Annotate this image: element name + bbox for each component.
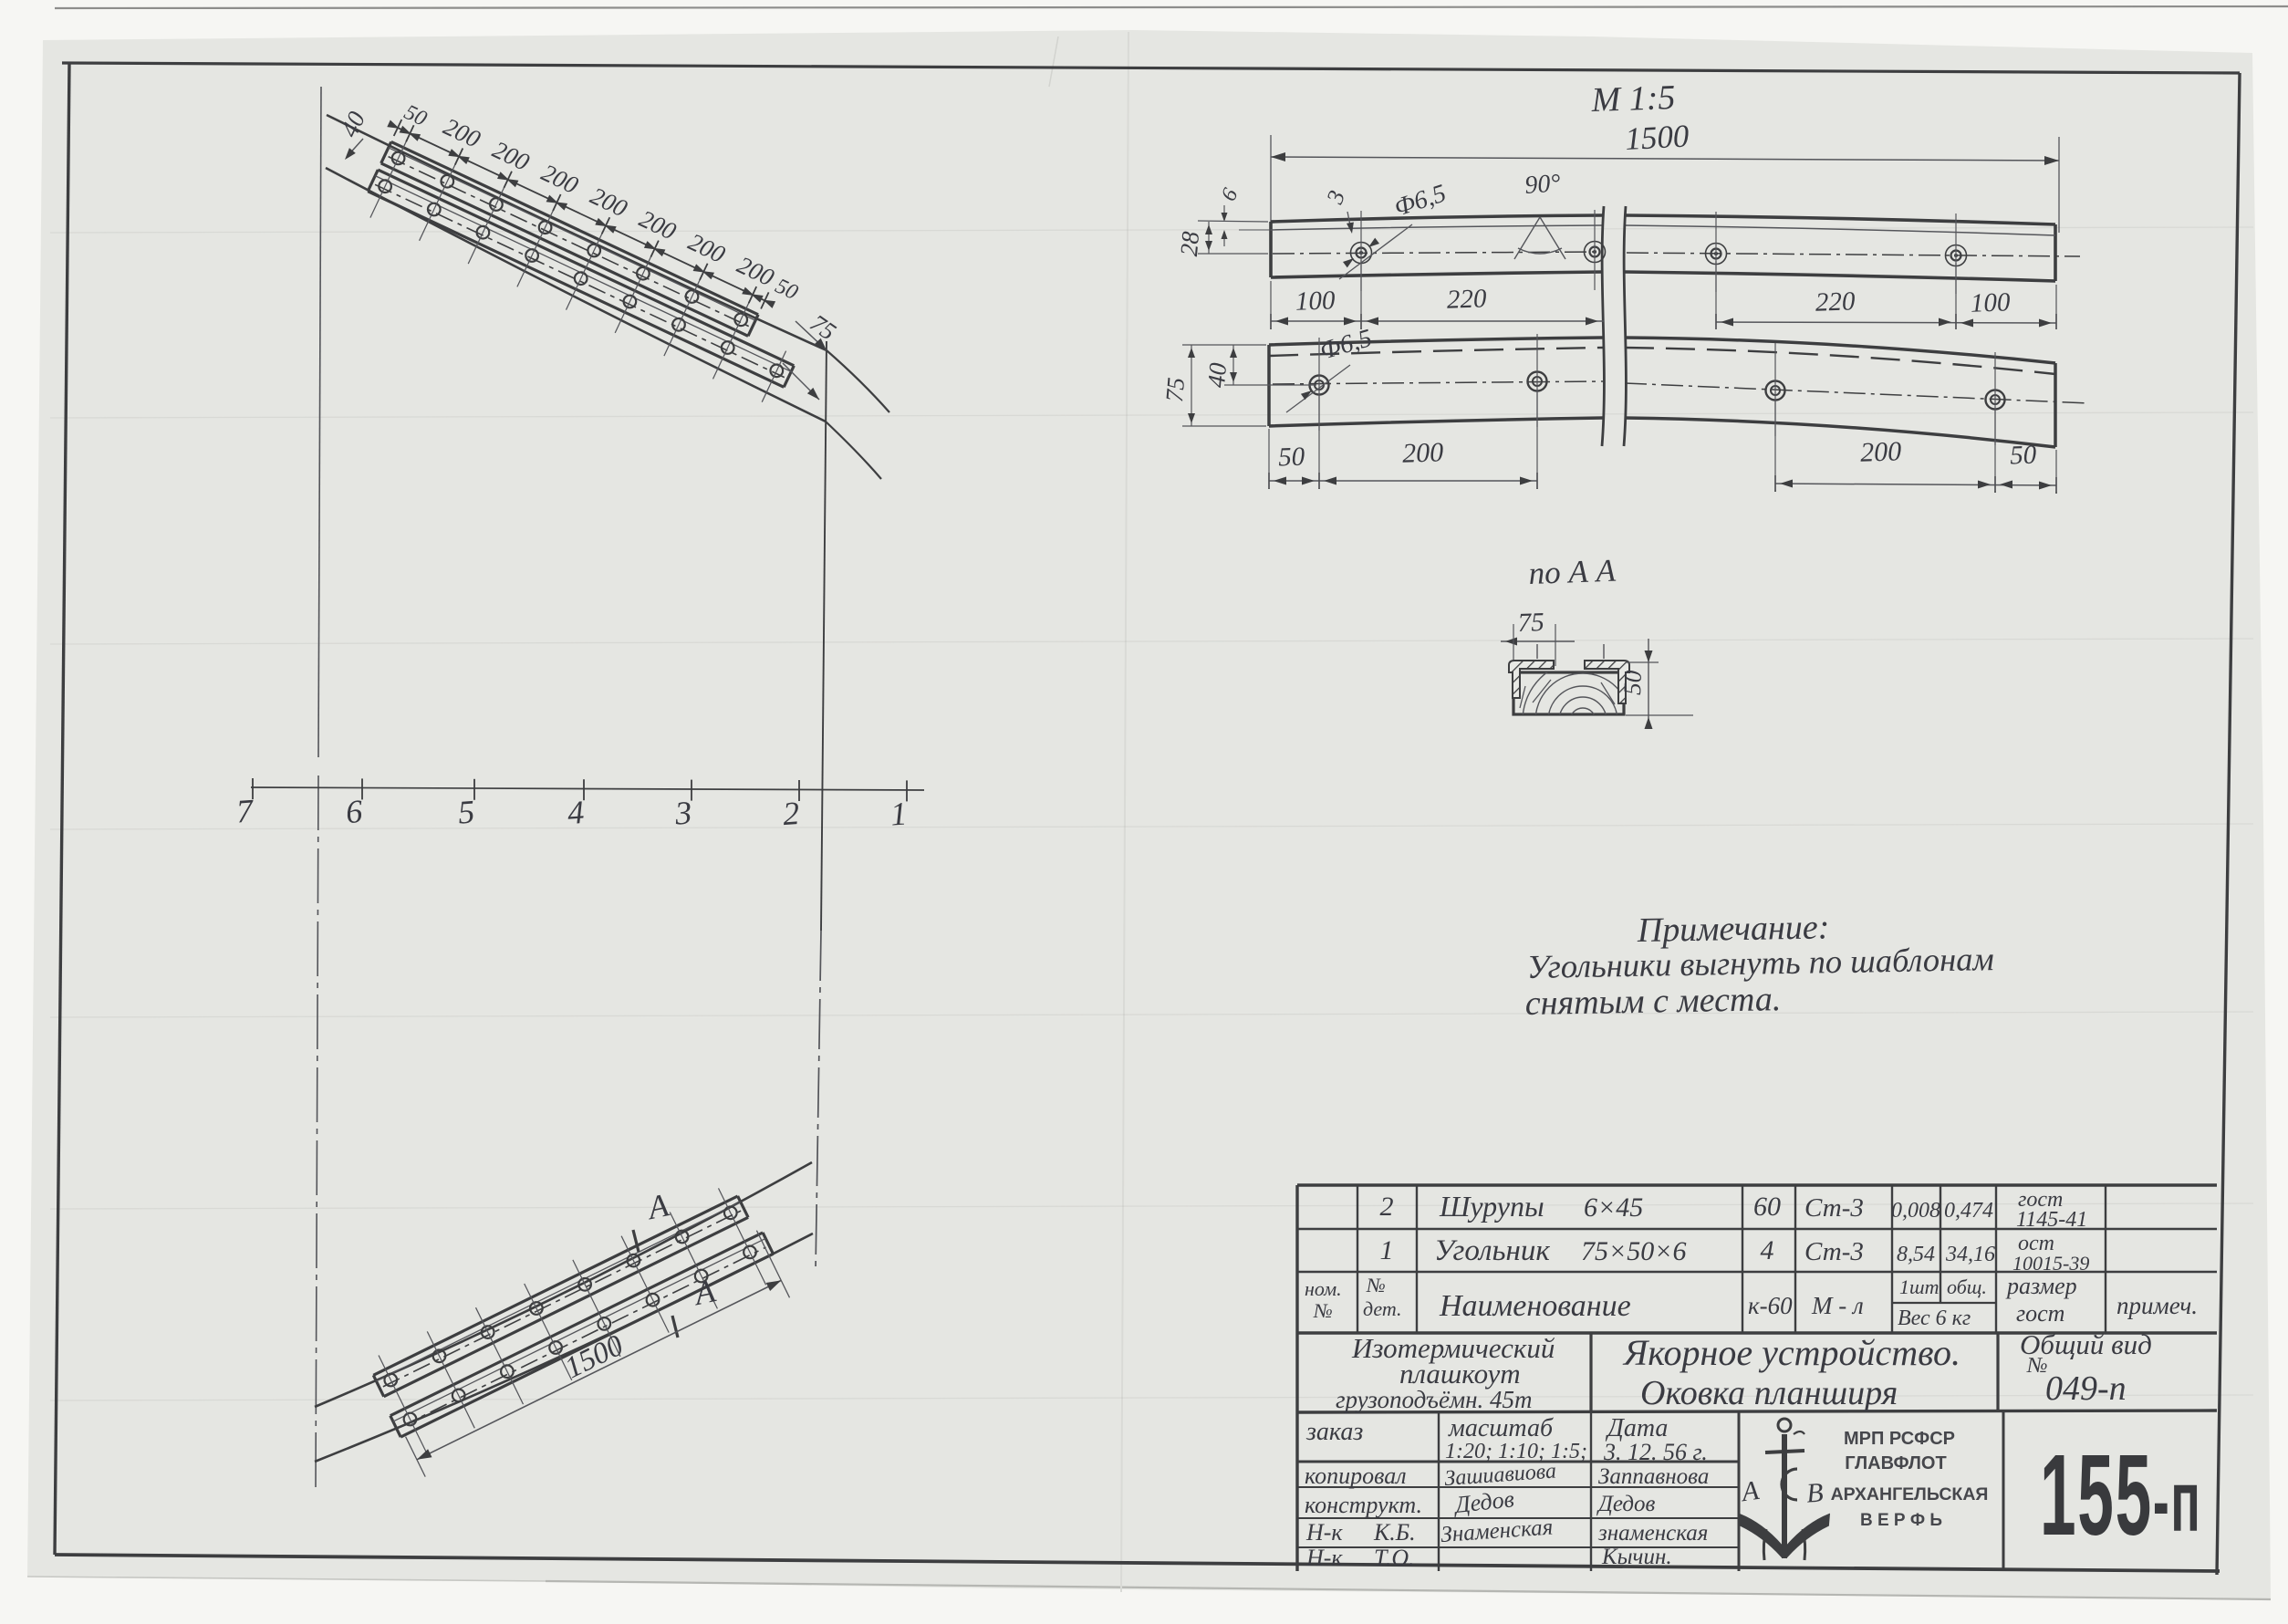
svg-text:50: 50 <box>1278 442 1306 472</box>
svg-text:Угольник: Угольник <box>1434 1234 1550 1267</box>
svg-text:Н-к: Н-к <box>1305 1519 1343 1546</box>
svg-text:Ст-3: Ст-3 <box>1804 1237 1864 1266</box>
svg-text:ГЛАВФЛОТ: ГЛАВФЛОТ <box>1845 1453 1946 1473</box>
svg-text:75×50×6: 75×50×6 <box>1581 1236 1687 1266</box>
svg-text:В: В <box>1805 1477 1825 1508</box>
svg-text:копировал: копировал <box>1305 1463 1407 1489</box>
svg-text:знаменская: знаменская <box>1597 1521 1708 1546</box>
svg-text:грузоподъёмн. 45т: грузоподъёмн. 45т <box>1336 1386 1533 1413</box>
svg-text:220: 220 <box>1815 286 1856 318</box>
svg-text:34,16: 34,16 <box>1945 1243 1995 1266</box>
svg-text:заказ: заказ <box>1305 1418 1363 1446</box>
svg-text:0,474: 0,474 <box>1944 1199 1993 1223</box>
svg-text:размер: размер <box>2005 1273 2077 1299</box>
svg-text:6: 6 <box>345 793 364 830</box>
svg-text:220: 220 <box>1446 284 1487 315</box>
svg-text:049-п: 049-п <box>2045 1369 2127 1408</box>
svg-text:М - л: М - л <box>1811 1292 1864 1319</box>
svg-text:200: 200 <box>1860 436 1902 468</box>
svg-text:общ.: общ. <box>1947 1275 1987 1298</box>
svg-text:4: 4 <box>567 794 586 831</box>
svg-text:1: 1 <box>889 795 909 832</box>
svg-text:100: 100 <box>1970 287 2011 318</box>
svg-text:Н-к: Н-к <box>1305 1545 1343 1571</box>
svg-text:АРХАНГЕЛЬСКАЯ: АРХАНГЕЛЬСКАЯ <box>1831 1484 1989 1504</box>
svg-text:75: 75 <box>1517 608 1544 638</box>
svg-text:МРП РСФСР: МРП РСФСР <box>1844 1429 1955 1449</box>
svg-text:1: 1 <box>1380 1235 1394 1265</box>
svg-text:3. 12. 56 г.: 3. 12. 56 г. <box>1603 1439 1708 1465</box>
svg-text:примеч.: примеч. <box>2116 1292 2198 1319</box>
svg-text:снятым с места.: снятым с места. <box>1524 980 1781 1023</box>
svg-text:75: 75 <box>1160 376 1190 403</box>
svg-text:50: 50 <box>1618 670 1647 696</box>
svg-text:дет.: дет. <box>1363 1297 1402 1320</box>
svg-text:1шт: 1шт <box>1899 1275 1940 1298</box>
svg-text:8,54: 8,54 <box>1897 1243 1935 1266</box>
svg-text:4: 4 <box>1761 1235 1774 1265</box>
svg-text:1:20; 1:10; 1:5;: 1:20; 1:10; 1:5; <box>1445 1440 1587 1463</box>
svg-text:0,008: 0,008 <box>1891 1199 1940 1223</box>
svg-text:5: 5 <box>457 793 476 830</box>
svg-text:В Е Р Ф Ь: В Е Р Ф Ь <box>1860 1511 1942 1530</box>
svg-text:Вес 6 кг: Вес 6 кг <box>1898 1306 1971 1330</box>
svg-text:1145-41: 1145-41 <box>2016 1208 2087 1232</box>
svg-text:конструкт.: конструкт. <box>1305 1492 1422 1518</box>
svg-text:2: 2 <box>782 795 801 832</box>
svg-text:2: 2 <box>1380 1192 1394 1222</box>
svg-text:50: 50 <box>2010 440 2038 470</box>
svg-text:Т.О.: Т.О. <box>1374 1545 1415 1571</box>
svg-text:10015-39: 10015-39 <box>2012 1252 2089 1275</box>
svg-text:плашкоут: плашкоут <box>1399 1358 1521 1390</box>
svg-text:Кычин.: Кычин. <box>1601 1545 1672 1569</box>
svg-text:3: 3 <box>673 794 693 831</box>
svg-text:Наименование: Наименование <box>1439 1289 1631 1323</box>
svg-text:ном.: ном. <box>1305 1277 1342 1300</box>
svg-text:100: 100 <box>1295 286 1336 317</box>
svg-text:200: 200 <box>1402 437 1444 469</box>
svg-text:масштаб: масштаб <box>1448 1414 1554 1442</box>
svg-text:№: № <box>1366 1274 1386 1296</box>
svg-text:90°: 90° <box>1524 169 1561 200</box>
svg-text:№: № <box>1313 1299 1333 1322</box>
svg-text:гост: гост <box>2016 1300 2064 1327</box>
svg-text:Оковка планширя: Оковка планширя <box>1640 1374 1898 1412</box>
svg-text:6×45: 6×45 <box>1584 1192 1643 1223</box>
svg-text:Якорное устройство.: Якорное устройство. <box>1622 1332 1960 1373</box>
svg-text:M 1:5: M 1:5 <box>1590 78 1676 120</box>
svg-text:Заппавнова: Заппавнова <box>1598 1464 1709 1489</box>
svg-text:К.Б.: К.Б. <box>1373 1519 1416 1546</box>
svg-text:1500: 1500 <box>1624 118 1690 157</box>
svg-text:Шурупы: Шурупы <box>1439 1190 1544 1223</box>
svg-text:по А А: по А А <box>1528 553 1617 591</box>
svg-text:к-60: к-60 <box>1748 1292 1793 1319</box>
svg-text:Ст-3: Ст-3 <box>1804 1193 1864 1223</box>
svg-text:60: 60 <box>1753 1192 1781 1222</box>
svg-text:Дедов: Дедов <box>1596 1492 1656 1516</box>
